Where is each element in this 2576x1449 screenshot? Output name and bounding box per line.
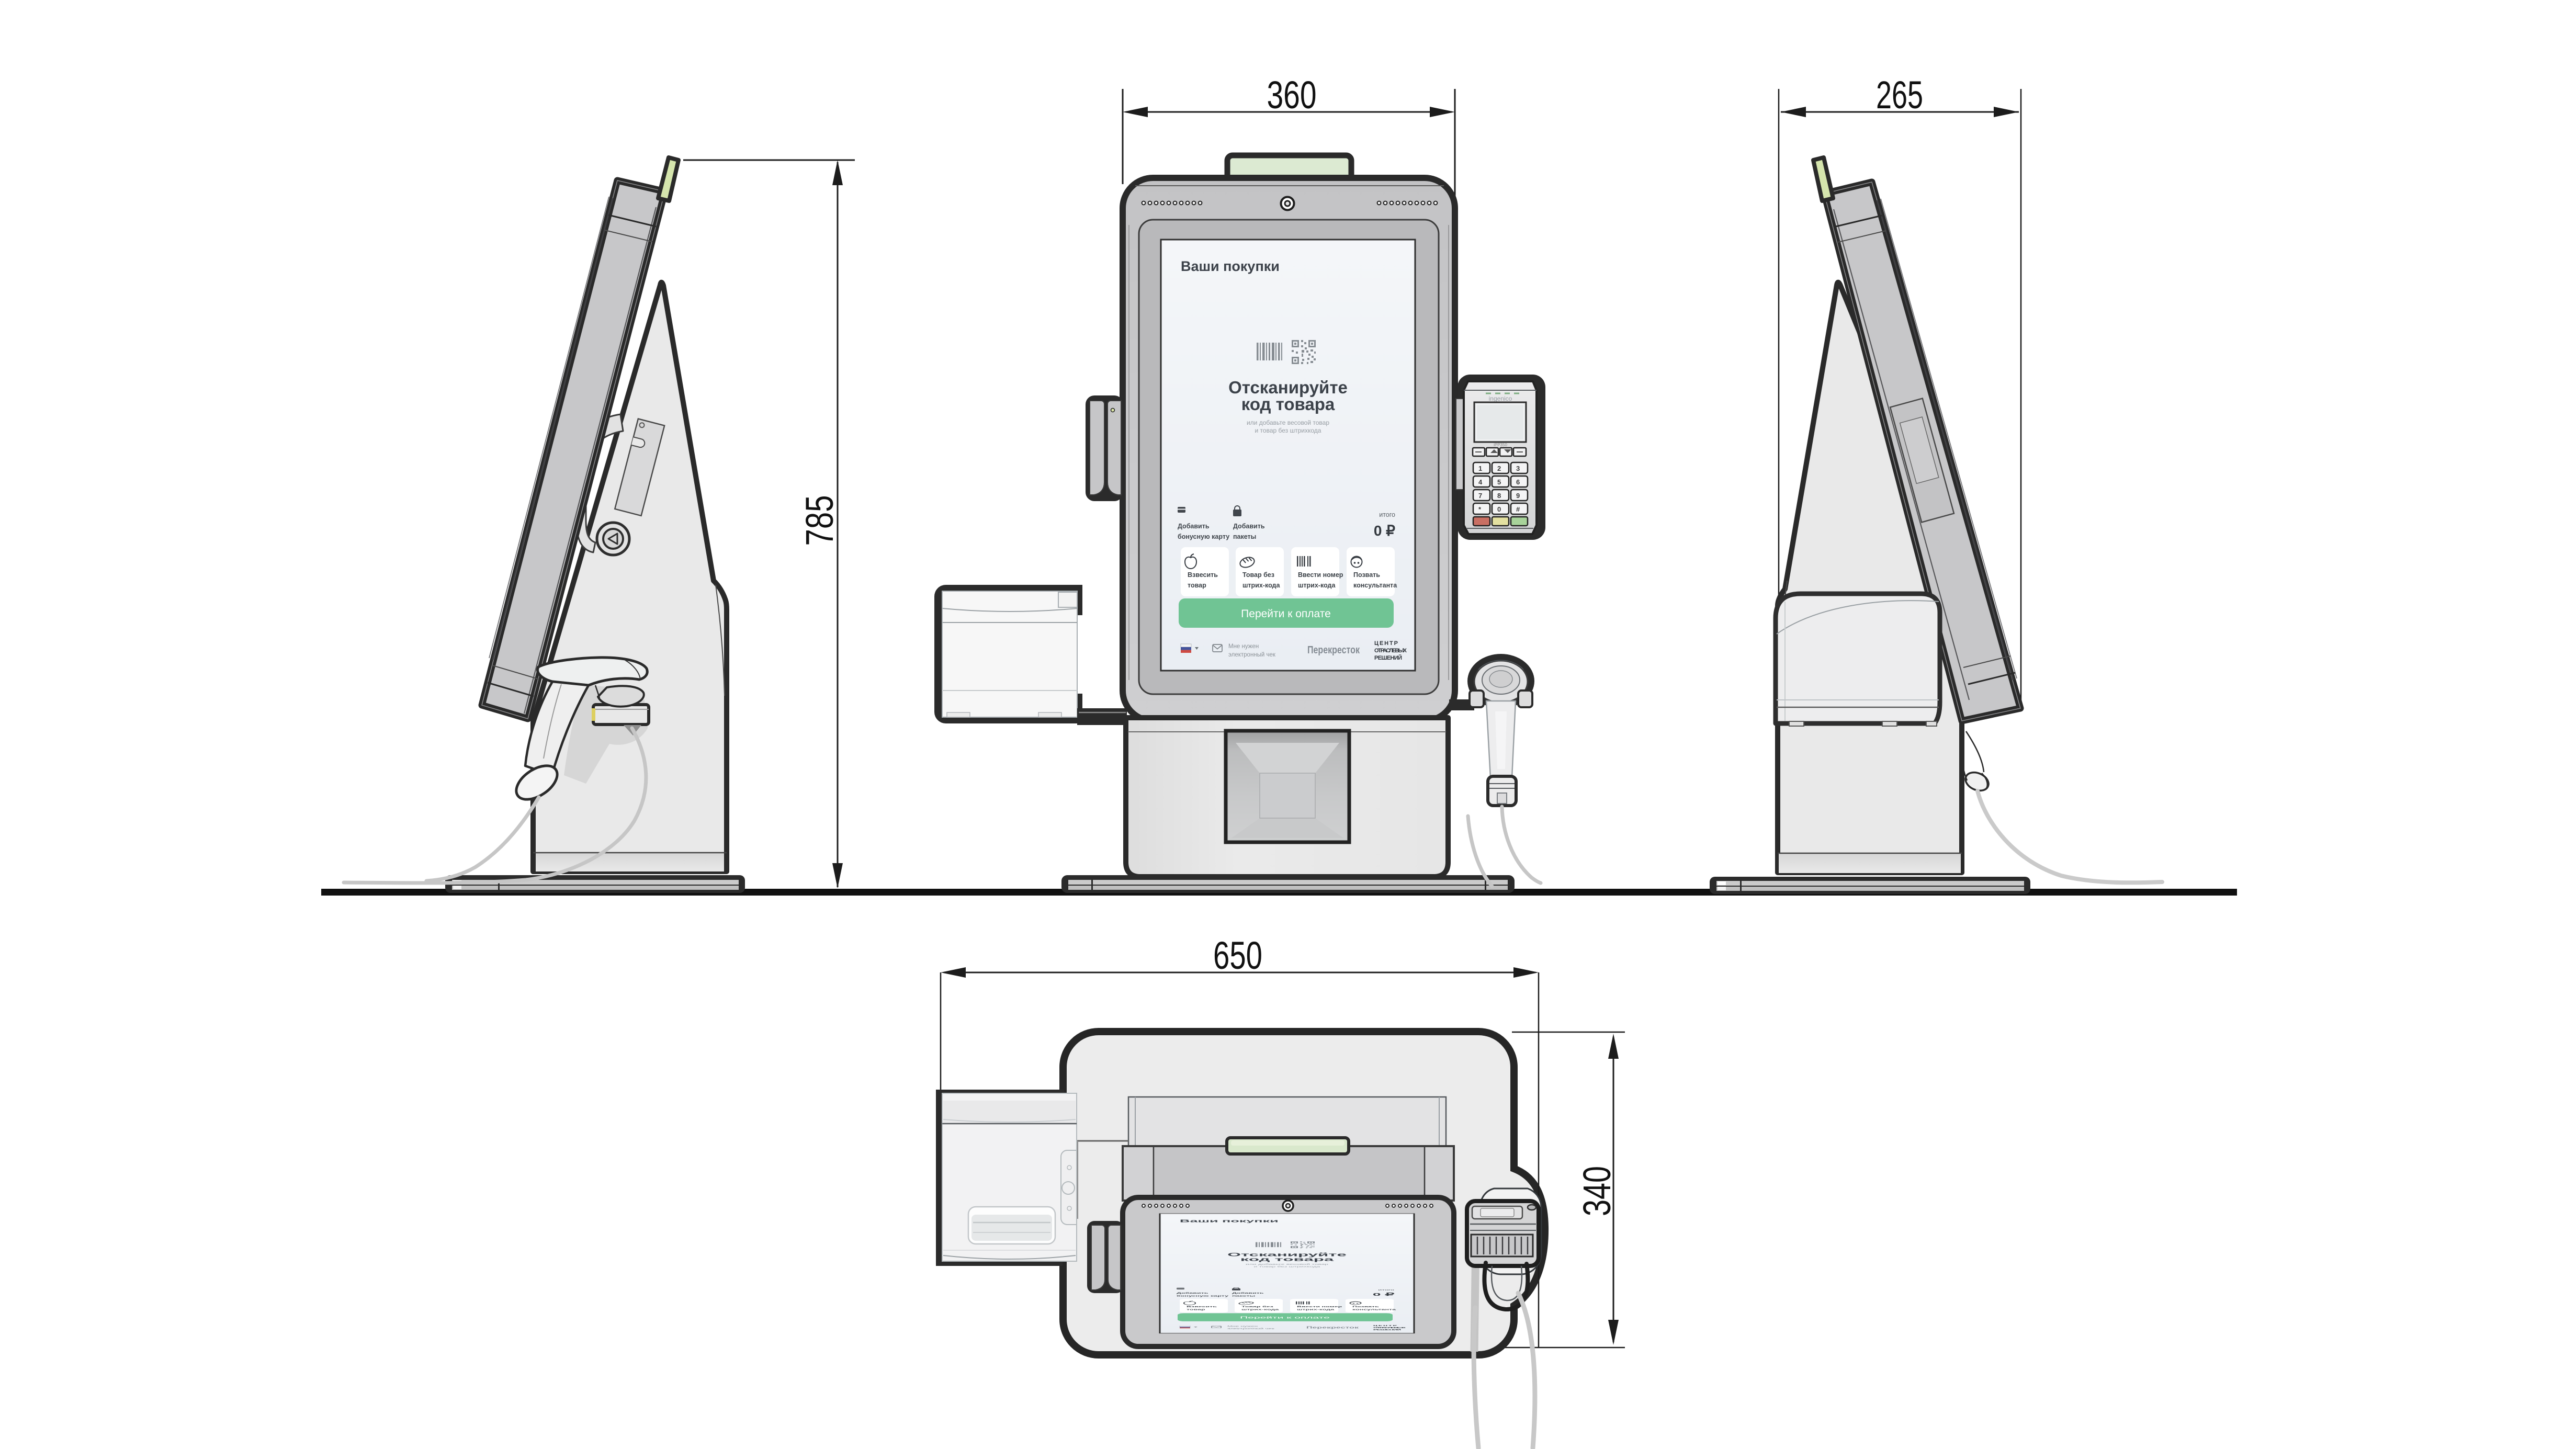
- svg-text:бонусную карту: бонусную карту: [1178, 533, 1229, 540]
- svg-text:4: 4: [1478, 478, 1483, 486]
- svg-text:Перейти к оплате: Перейти к оплате: [1241, 608, 1331, 620]
- svg-text:электронный чек: электронный чек: [1228, 652, 1276, 658]
- svg-text:ОТРАСЛЕВЫХ: ОТРАСЛЕВЫХ: [1374, 648, 1407, 654]
- svg-text:3: 3: [1516, 465, 1520, 472]
- svg-text:360: 360: [1267, 73, 1317, 117]
- svg-text:Добавить: Добавить: [1233, 523, 1265, 530]
- svg-text:340: 340: [1575, 1166, 1619, 1216]
- svg-text:0: 0: [1497, 505, 1501, 513]
- svg-text:и товар без штрихкода: и товар без штрихкода: [1255, 427, 1321, 434]
- svg-text:Мне нужен: Мне нужен: [1228, 643, 1259, 650]
- svg-text:Позвать: Позвать: [1353, 571, 1380, 579]
- svg-text:РЕШЕНИЙ: РЕШЕНИЙ: [1374, 654, 1402, 661]
- svg-text:785: 785: [798, 495, 841, 546]
- svg-text:консультанта: консультанта: [1353, 582, 1397, 589]
- svg-text:Взвесить: Взвесить: [1188, 571, 1218, 579]
- svg-text:Перекресток: Перекресток: [1307, 644, 1360, 656]
- svg-text:штрих-кода: штрих-кода: [1298, 582, 1336, 589]
- svg-text:2: 2: [1497, 465, 1501, 472]
- svg-text:0 ₽: 0 ₽: [1374, 523, 1395, 539]
- svg-text:ingenico: ingenico: [1489, 395, 1512, 402]
- svg-text:штрих-кода: штрих-кода: [1242, 582, 1280, 589]
- svg-text:9: 9: [1516, 492, 1520, 500]
- svg-text:5: 5: [1497, 478, 1501, 486]
- svg-text:пакеты: пакеты: [1233, 533, 1256, 540]
- svg-text:или добавьте весовой товар: или добавьте весовой товар: [1247, 419, 1329, 426]
- svg-text:Ввести номер: Ввести номер: [1298, 571, 1343, 579]
- svg-text:1: 1: [1478, 465, 1482, 472]
- svg-text:6: 6: [1516, 478, 1520, 486]
- svg-text:#: #: [1516, 505, 1520, 513]
- svg-text:Товар без: Товар без: [1242, 571, 1274, 579]
- svg-text:ЦЕНТР: ЦЕНТР: [1374, 640, 1398, 647]
- svg-text:8: 8: [1497, 492, 1501, 500]
- svg-text:код товара: код товара: [1241, 394, 1335, 414]
- svg-text:265: 265: [1876, 73, 1923, 117]
- svg-text:товар: товар: [1188, 582, 1206, 589]
- svg-text:Добавить: Добавить: [1178, 523, 1210, 530]
- svg-text:итого: итого: [1379, 511, 1395, 518]
- svg-text:650: 650: [1213, 934, 1262, 977]
- svg-text:7: 7: [1478, 492, 1482, 500]
- svg-text:iPP350: iPP350: [1494, 443, 1507, 447]
- svg-text:Ваши покупки: Ваши покупки: [1181, 258, 1280, 274]
